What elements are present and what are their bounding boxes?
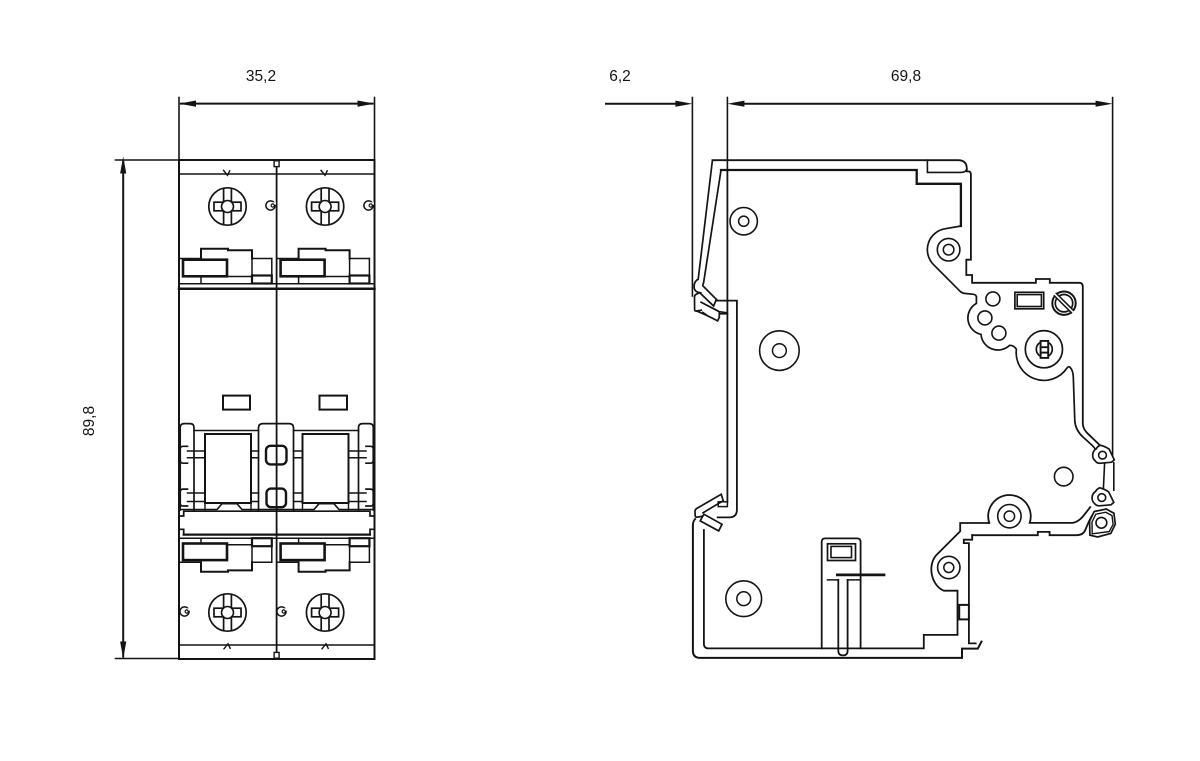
svg-text:6,2: 6,2	[609, 68, 631, 85]
svg-text:89,8: 89,8	[81, 406, 98, 436]
svg-text:35,2: 35,2	[246, 68, 276, 85]
svg-text:69,8: 69,8	[891, 68, 921, 85]
